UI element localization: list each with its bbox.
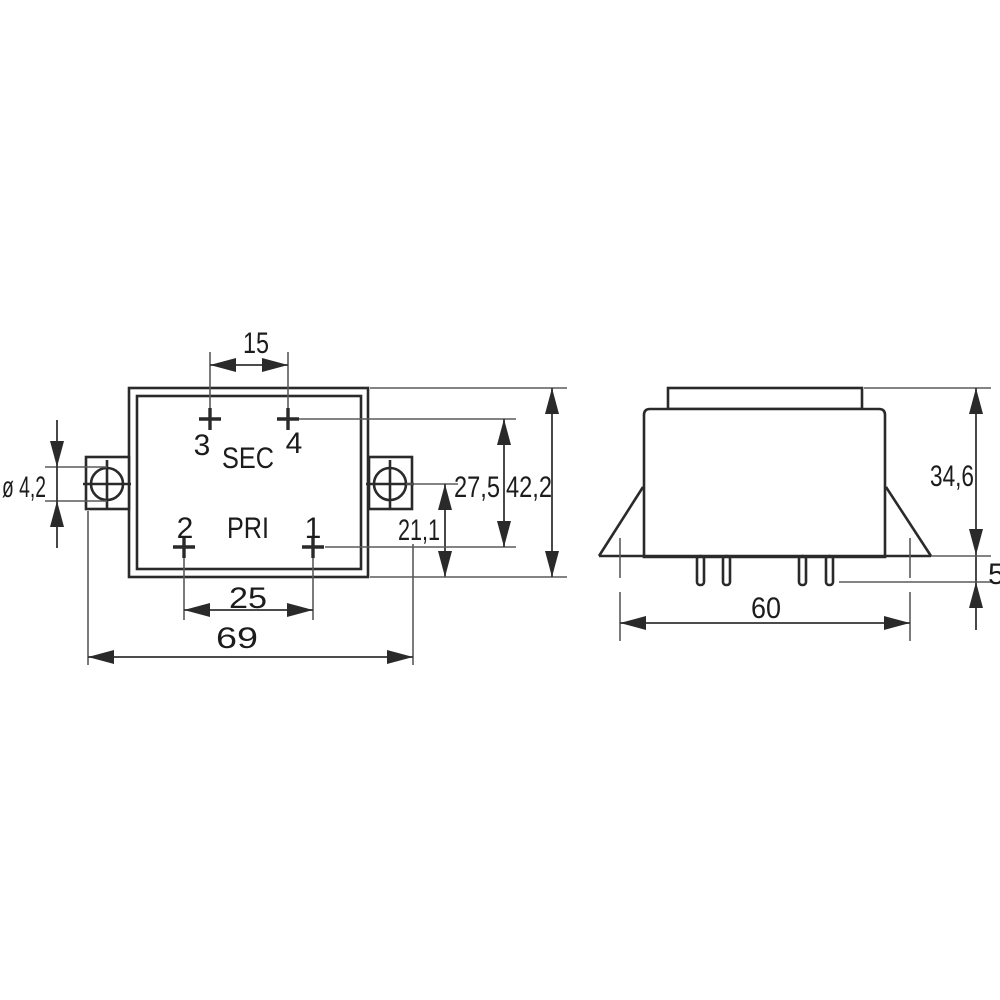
solder-pins	[697, 556, 833, 585]
dim-text-60: 60	[751, 592, 781, 625]
body-side-outline	[644, 409, 885, 557]
dim-text-4-2: ø 4,2	[2, 471, 46, 504]
pin-label-1: 1	[305, 512, 322, 545]
dim-text-25: 25	[229, 582, 267, 615]
pin-label-4: 4	[286, 427, 303, 460]
transformer-dimension-drawing: 3 4 SEC 2 PRI 1 15 ø 4,2	[0, 0, 1000, 1000]
winding-label-sec: SEC	[222, 442, 274, 475]
dim-text-42-2: 42,2	[506, 471, 552, 504]
dim-text-69: 69	[216, 622, 258, 655]
pin-label-3: 3	[194, 429, 211, 462]
dim-text-5: 5	[988, 558, 1000, 591]
dim-text-21-1: 21,1	[398, 514, 440, 547]
top-view: 3 4 SEC 2 PRI 1 15 ø 4,2	[2, 327, 567, 665]
flange-left-hypotenuse	[599, 487, 643, 556]
body-outline-outer	[129, 388, 368, 577]
side-view: 34,6 5 60	[599, 388, 1000, 641]
pin-label-2: 2	[177, 512, 194, 545]
dim-hole-spacing: 60	[620, 592, 910, 641]
dim-text-34-6: 34,6	[930, 460, 974, 493]
winding-label-pri: PRI	[227, 512, 269, 545]
top-cap	[668, 388, 862, 409]
dim-text-27-5: 27,5	[454, 471, 500, 504]
dim-text-15: 15	[243, 327, 269, 360]
flange-right-hypotenuse	[886, 487, 931, 556]
